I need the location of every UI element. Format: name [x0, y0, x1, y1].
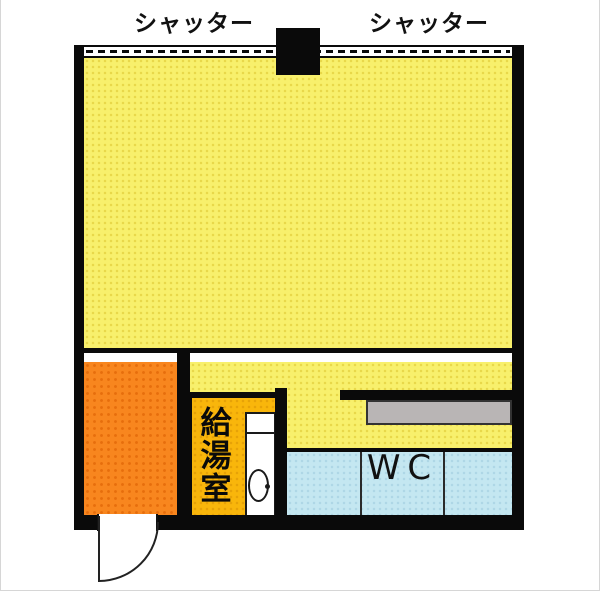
- sink-edge-line: [245, 432, 276, 434]
- wall-right: [512, 45, 524, 530]
- sink-faucet-icon: [265, 484, 270, 489]
- floor-plan: 給湯室 WC シャッター シャッター: [0, 0, 600, 591]
- main-room: [84, 58, 512, 348]
- pillar: [276, 28, 320, 75]
- mid-wall: [84, 348, 512, 353]
- wc-divider-2: [443, 452, 445, 515]
- door-arc-icon: [96, 515, 166, 587]
- partition-band: [84, 353, 512, 362]
- shutter-label-left: シャッター: [134, 4, 254, 38]
- wc-label: WC: [362, 451, 443, 485]
- counter: [366, 400, 512, 425]
- wc-upper-wall: [340, 390, 512, 400]
- image-edge-left: [0, 0, 1, 591]
- wall-left: [74, 45, 84, 530]
- kitchenette-label: 給湯室: [196, 406, 229, 511]
- service-room: [84, 362, 177, 515]
- shutter-label-right: シャッター: [369, 4, 489, 38]
